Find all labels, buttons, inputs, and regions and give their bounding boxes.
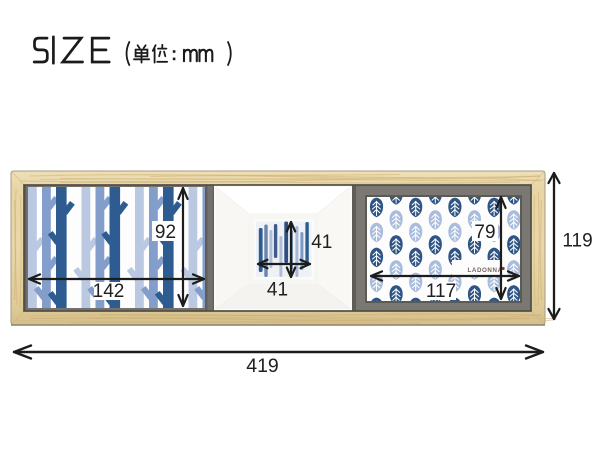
svg-text:41: 41 (267, 280, 288, 301)
svg-text:142: 142 (93, 281, 125, 302)
svg-text:41: 41 (311, 232, 332, 253)
svg-text:92: 92 (155, 222, 176, 243)
svg-text:79: 79 (474, 222, 495, 243)
svg-text:117: 117 (426, 281, 456, 302)
svg-text:119: 119 (562, 231, 592, 252)
svg-text:LADONNA: LADONNA (468, 267, 503, 274)
svg-text:419: 419 (246, 355, 279, 377)
